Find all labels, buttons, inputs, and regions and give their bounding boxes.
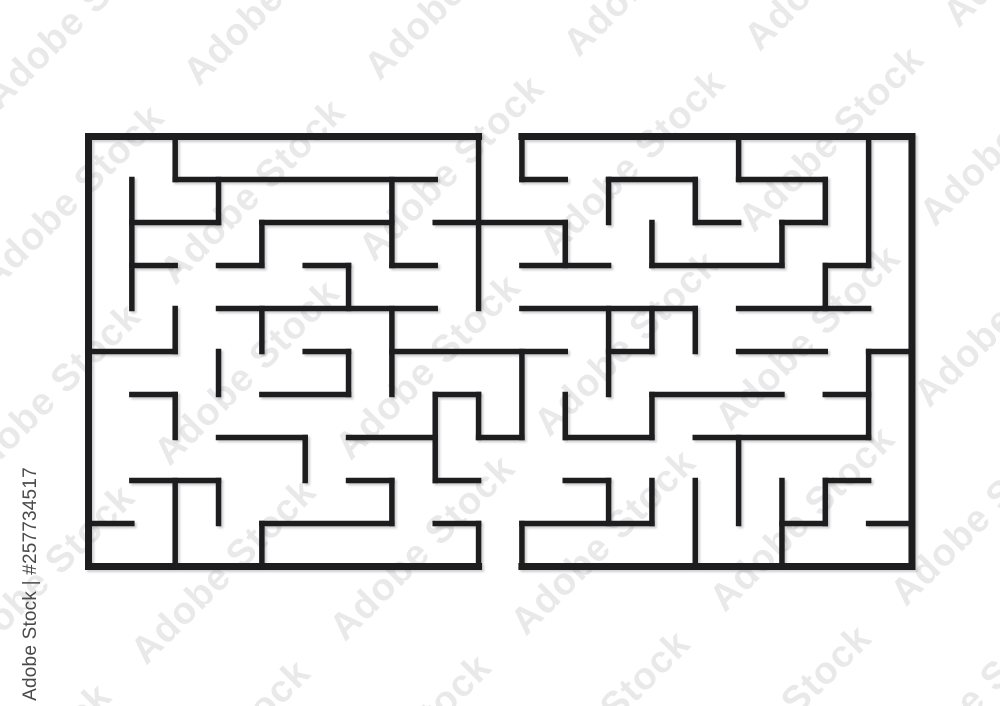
stock-preview-image: Adobe StockAdobe StockAdobe StockAdobe S… [0, 0, 1000, 706]
maze-walls [89, 137, 912, 567]
maze-puzzle [0, 0, 1000, 706]
asset-id-label: Adobe Stock | #257734517 [20, 467, 42, 701]
